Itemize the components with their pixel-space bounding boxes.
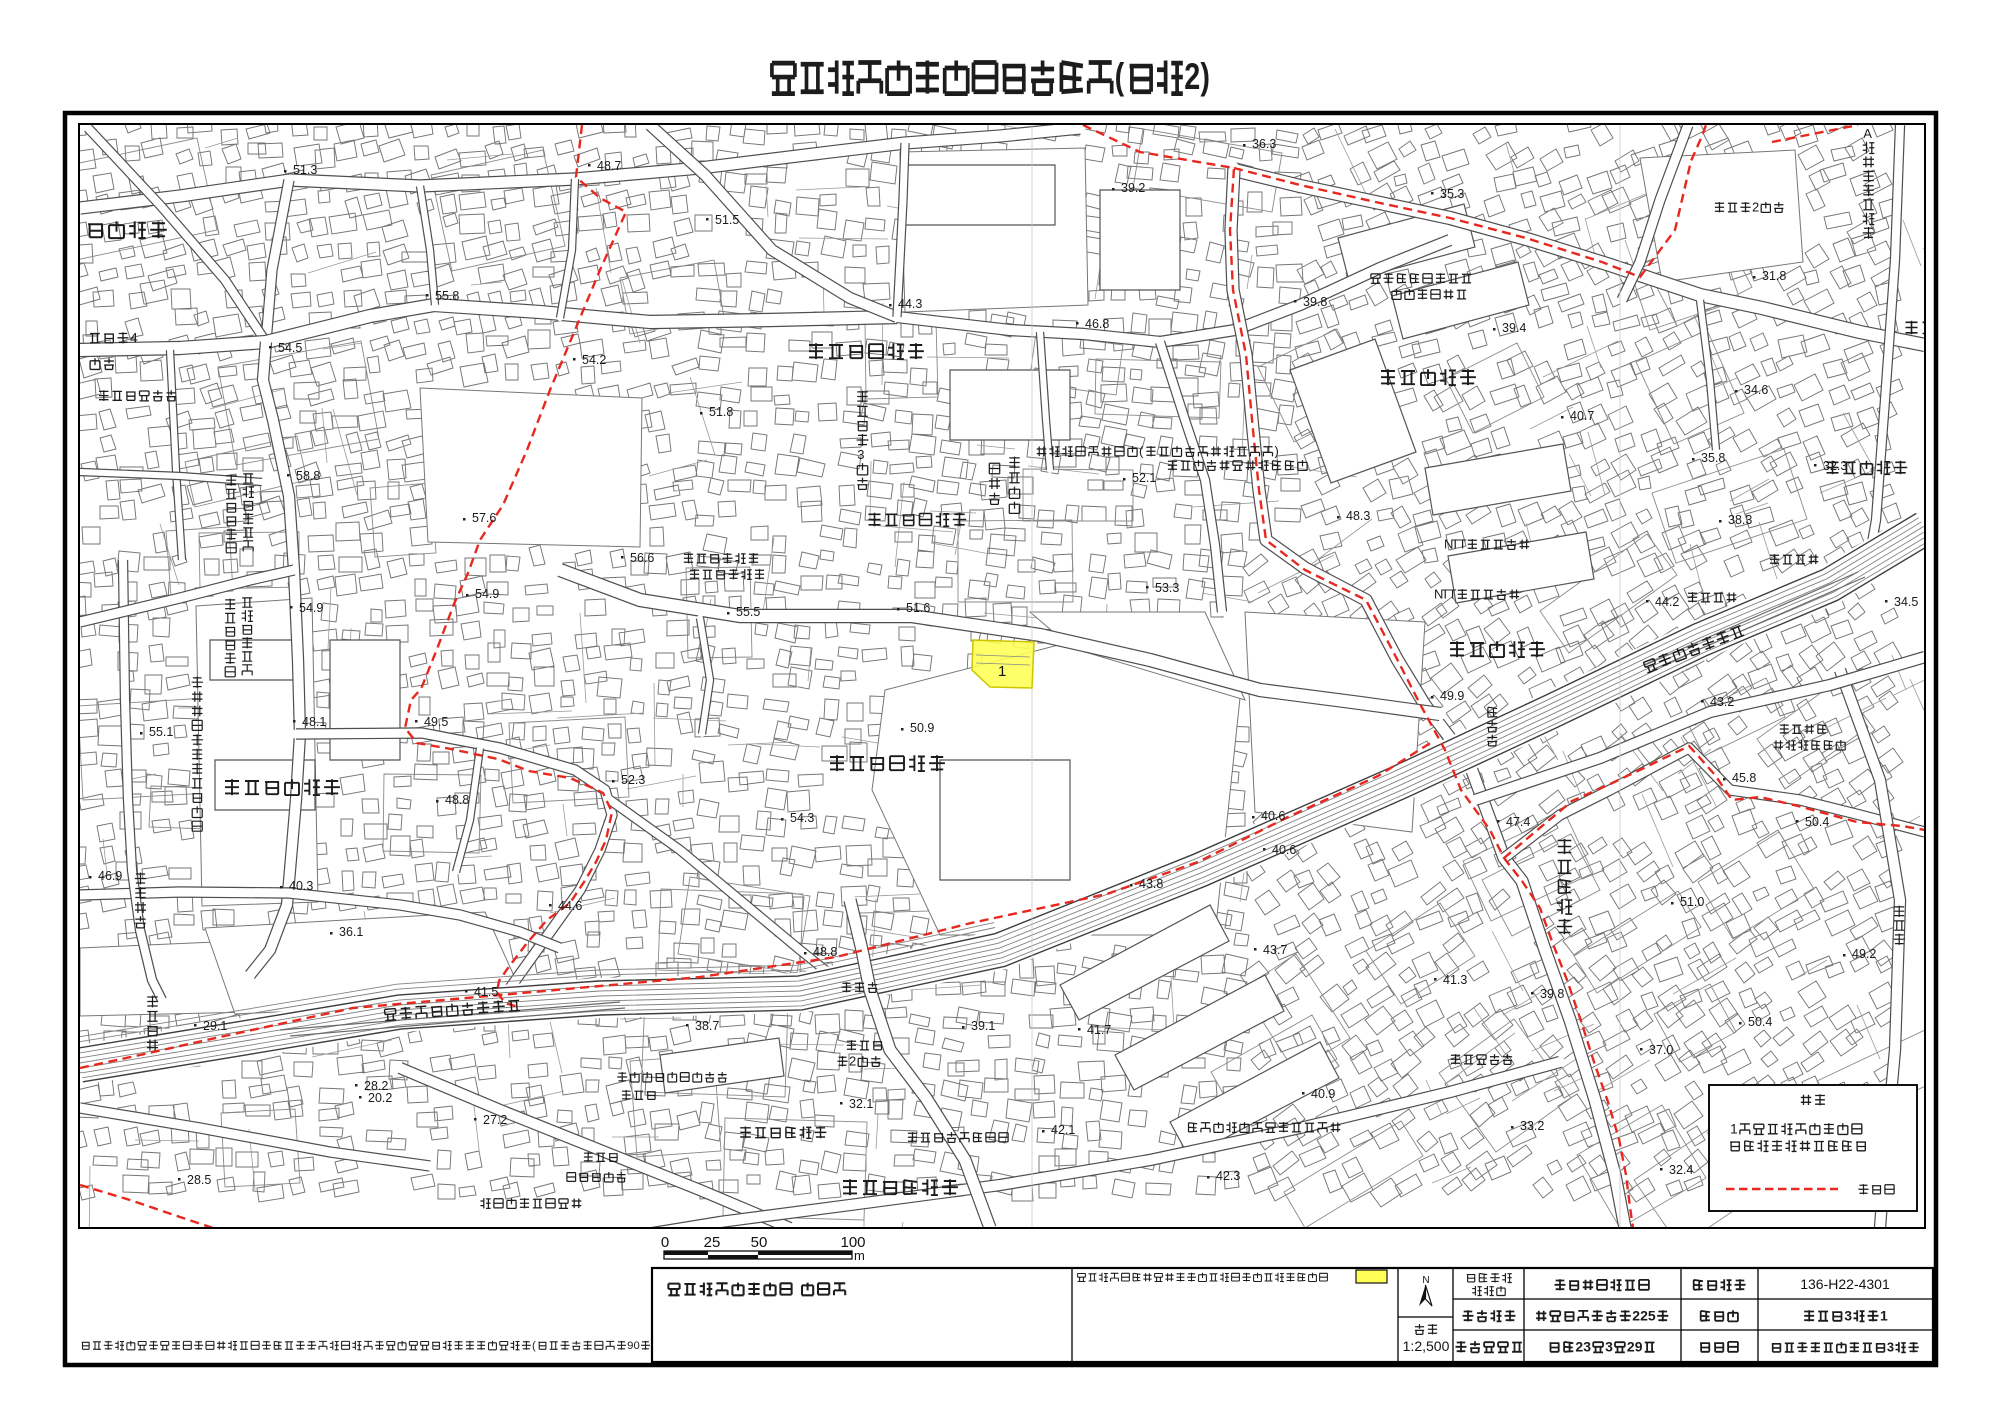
svg-text:36.3: 36.3 <box>1252 137 1276 151</box>
svg-text:): ) <box>1275 443 1279 458</box>
svg-text:3: 3 <box>1887 1339 1894 1354</box>
svg-text:49.5: 49.5 <box>424 715 448 729</box>
svg-text:54.9: 54.9 <box>299 601 323 615</box>
svg-text:40.7: 40.7 <box>1570 409 1594 423</box>
svg-text:3: 3 <box>857 447 864 462</box>
svg-text:57.6: 57.6 <box>472 511 496 525</box>
svg-text:48.3: 48.3 <box>1346 509 1370 523</box>
svg-text:37.0: 37.0 <box>1649 1043 1673 1057</box>
svg-text:38.3: 38.3 <box>1728 513 1752 527</box>
svg-text:39.2: 39.2 <box>1121 181 1145 195</box>
svg-text:2: 2 <box>1575 1338 1583 1354</box>
svg-text:): ) <box>1200 57 1210 98</box>
svg-text:40.6: 40.6 <box>1261 809 1285 823</box>
svg-text:35.8: 35.8 <box>1701 451 1725 465</box>
svg-text:40.9: 40.9 <box>1311 1087 1335 1101</box>
svg-text:48.7: 48.7 <box>597 159 621 173</box>
svg-text:46.9: 46.9 <box>98 869 122 883</box>
svg-text:32.3: 32.3 <box>1823 459 1847 473</box>
svg-text:51.0: 51.0 <box>1680 895 1704 909</box>
svg-text:A: A <box>1863 126 1872 141</box>
svg-text:1:2,500: 1:2,500 <box>1403 1338 1450 1354</box>
svg-text:45.8: 45.8 <box>1732 771 1756 785</box>
svg-text:4: 4 <box>130 329 138 345</box>
svg-text:43.8: 43.8 <box>1139 877 1163 891</box>
svg-text:2: 2 <box>1184 57 1200 98</box>
svg-text:1: 1 <box>1880 1307 1888 1323</box>
svg-text:50.4: 50.4 <box>1805 815 1829 829</box>
svg-text:N: N <box>1422 1275 1429 1286</box>
svg-text:40.3: 40.3 <box>289 879 313 893</box>
svg-text:55.5: 55.5 <box>736 605 760 619</box>
svg-text:41.3: 41.3 <box>1443 973 1467 987</box>
svg-text:1: 1 <box>1730 1120 1738 1136</box>
svg-text:27.2: 27.2 <box>483 1113 507 1127</box>
svg-text:3: 3 <box>1583 1338 1591 1354</box>
svg-text:55.1: 55.1 <box>149 725 173 739</box>
svg-text:51.8: 51.8 <box>709 405 733 419</box>
svg-text:52.1: 52.1 <box>1132 471 1156 485</box>
svg-text:50: 50 <box>751 1234 768 1251</box>
svg-text:48.8: 48.8 <box>813 945 837 959</box>
svg-text:51.3: 51.3 <box>293 163 317 177</box>
svg-text:44.6: 44.6 <box>558 899 582 913</box>
svg-text:(: ( <box>1139 443 1144 458</box>
svg-text:40.6: 40.6 <box>1272 843 1296 857</box>
svg-text:33.2: 33.2 <box>1520 1119 1544 1133</box>
svg-text:0: 0 <box>634 1340 640 1352</box>
svg-text:3: 3 <box>1844 1307 1852 1323</box>
svg-text:55.8: 55.8 <box>435 289 459 303</box>
svg-text:39.1: 39.1 <box>971 1019 995 1033</box>
svg-text:54.3: 54.3 <box>790 811 814 825</box>
svg-text:41.7: 41.7 <box>1087 1023 1111 1037</box>
svg-text:35.3: 35.3 <box>1440 187 1464 201</box>
svg-text:56.6: 56.6 <box>630 551 654 565</box>
svg-text:51.5: 51.5 <box>715 213 739 227</box>
svg-text:5: 5 <box>1648 1307 1656 1323</box>
svg-text:47.4: 47.4 <box>1506 815 1530 829</box>
svg-text:44.3: 44.3 <box>898 297 922 311</box>
svg-text:42.1: 42.1 <box>1051 1123 1075 1137</box>
svg-text:54.9: 54.9 <box>475 587 499 601</box>
svg-text:54.2: 54.2 <box>582 353 606 367</box>
svg-text:136-H22-4301: 136-H22-4301 <box>1800 1276 1890 1292</box>
svg-text:48.8: 48.8 <box>445 793 469 807</box>
svg-text:20.2: 20.2 <box>368 1091 392 1105</box>
svg-text:9: 9 <box>627 1340 633 1352</box>
svg-text:2: 2 <box>1627 1338 1635 1354</box>
svg-text:2: 2 <box>849 1053 856 1068</box>
svg-text:0: 0 <box>661 1234 669 1251</box>
svg-text:43.7: 43.7 <box>1263 943 1287 957</box>
svg-text:T: T <box>1449 586 1457 601</box>
svg-text:m: m <box>854 1248 865 1263</box>
svg-text:58.8: 58.8 <box>296 469 320 483</box>
svg-text:50.4: 50.4 <box>1748 1015 1772 1029</box>
svg-text:28.5: 28.5 <box>187 1173 211 1187</box>
svg-text:34.6: 34.6 <box>1744 383 1768 397</box>
svg-text:52.3: 52.3 <box>621 773 645 787</box>
svg-text:32.4: 32.4 <box>1669 1163 1693 1177</box>
svg-text:44.2: 44.2 <box>1655 595 1679 609</box>
svg-text:31.8: 31.8 <box>1762 269 1786 283</box>
svg-text:38.7: 38.7 <box>695 1019 719 1033</box>
svg-text:42.3: 42.3 <box>1216 1169 1240 1183</box>
svg-text:54.5: 54.5 <box>278 341 302 355</box>
svg-text:29.1: 29.1 <box>203 1019 227 1033</box>
svg-text:2: 2 <box>1632 1307 1640 1323</box>
svg-text:T: T <box>1459 536 1467 551</box>
svg-text:48.1: 48.1 <box>302 715 326 729</box>
svg-text:1: 1 <box>998 663 1006 680</box>
svg-text:2: 2 <box>1640 1307 1648 1323</box>
svg-text:(: ( <box>1115 57 1125 98</box>
svg-text:49.9: 49.9 <box>1440 689 1464 703</box>
svg-text:32.1: 32.1 <box>849 1097 873 1111</box>
svg-text:36.1: 36.1 <box>339 925 363 939</box>
svg-text:(: ( <box>532 1340 536 1352</box>
svg-text:2: 2 <box>1752 199 1759 214</box>
svg-text:39.4: 39.4 <box>1502 321 1526 335</box>
svg-text:53.3: 53.3 <box>1155 581 1179 595</box>
svg-text:43.2: 43.2 <box>1710 695 1734 709</box>
svg-text:51.6: 51.6 <box>906 601 930 615</box>
svg-text:46.8: 46.8 <box>1085 317 1109 331</box>
svg-text:34.5: 34.5 <box>1894 595 1918 609</box>
svg-text:25: 25 <box>704 1234 721 1251</box>
svg-text:39.8: 39.8 <box>1303 295 1327 309</box>
svg-text:39.8: 39.8 <box>1540 987 1564 1001</box>
svg-text:41.5: 41.5 <box>474 985 498 999</box>
svg-text:9: 9 <box>1635 1338 1643 1354</box>
svg-text:49.2: 49.2 <box>1852 947 1876 961</box>
svg-text:3: 3 <box>1605 1338 1613 1354</box>
svg-text:50.9: 50.9 <box>910 721 934 735</box>
